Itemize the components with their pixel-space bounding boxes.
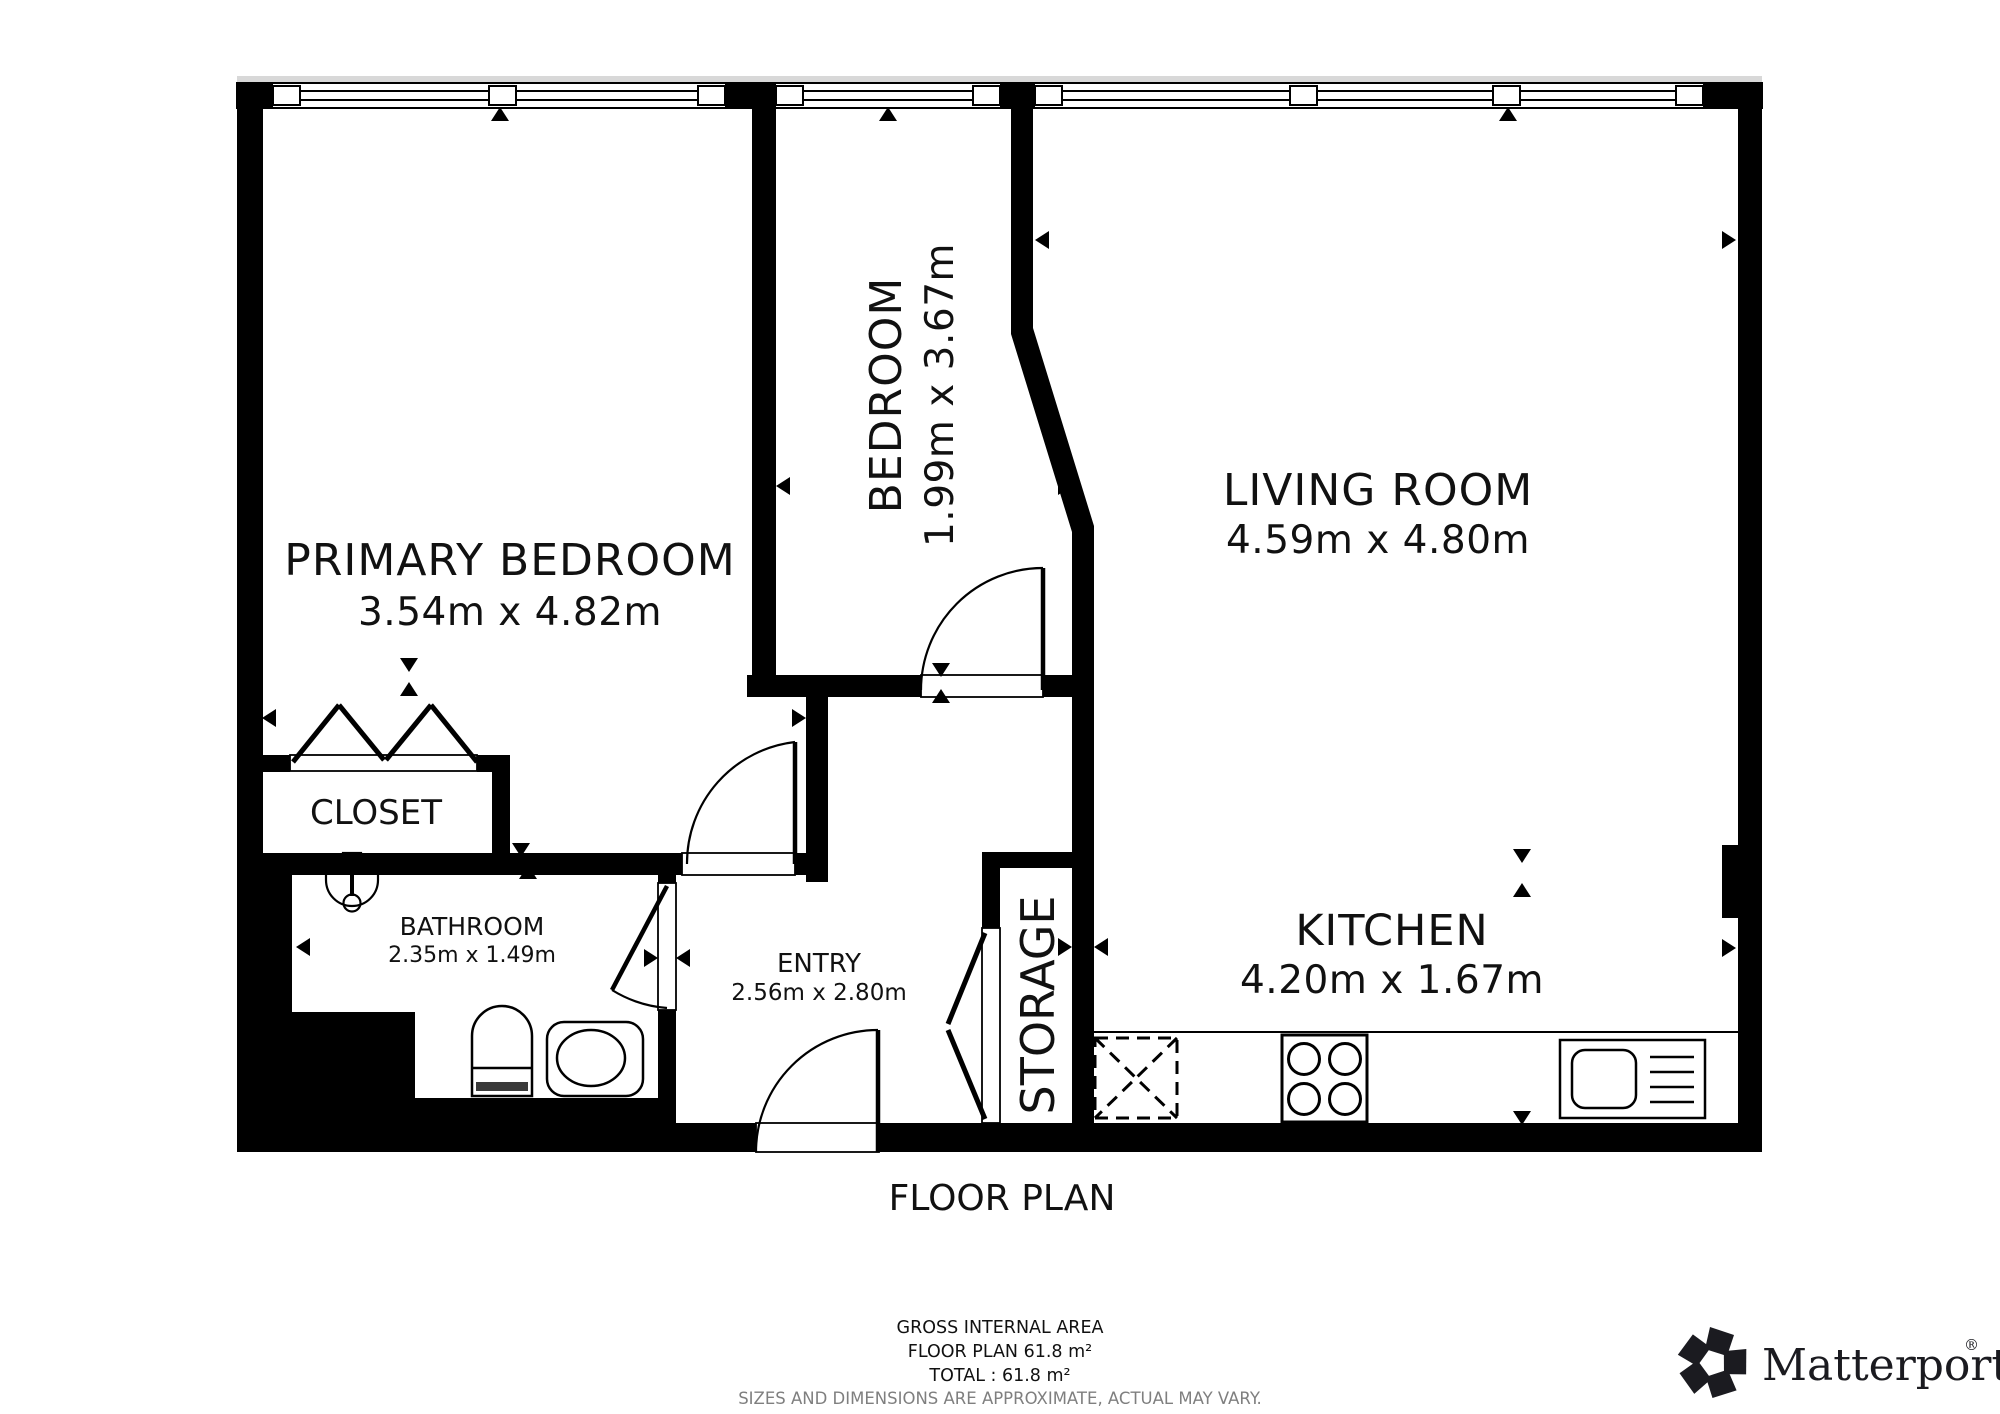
wall-right-notch	[1722, 845, 1738, 918]
arrow-up-icon	[1499, 107, 1517, 121]
footer-total-area: TOTAL : 61.8 m²	[928, 1366, 1070, 1386]
wall-closet-stub	[263, 755, 290, 772]
label-bedroom-dims: 1.99m x 3.67m	[918, 243, 963, 547]
arrow-down-icon	[400, 658, 418, 672]
matterport-mark-icon	[1675, 1327, 1754, 1404]
wall-entry-divider	[806, 675, 828, 882]
primary-bedroom-door-sill	[682, 853, 795, 875]
primary-bedroom-door	[687, 742, 795, 864]
floor-plan-page: PRIMARY BEDROOM 3.54m x 4.82m BEDROOM 1.…	[0, 0, 2000, 1414]
label-bathroom-dims: 2.35m x 1.49m	[388, 943, 556, 968]
label-kitchen-name: KITCHEN	[1295, 906, 1488, 956]
stove-icon	[1282, 1035, 1367, 1122]
matterport-logo: Matterport ®	[1675, 1327, 2000, 1404]
label-primary-bedroom-name: PRIMARY BEDROOM	[284, 535, 735, 586]
wall-bottom-left-raise	[237, 1098, 676, 1123]
arrow-right-icon	[792, 709, 806, 727]
storage-door-sill	[982, 928, 1000, 1123]
wall-shadow	[237, 76, 1762, 83]
wall-closet-stub	[477, 755, 492, 772]
arrow-up-icon	[400, 682, 418, 696]
wall-right	[1738, 83, 1762, 1152]
wall-window-separator	[1000, 83, 1035, 108]
closet-bifold-door	[293, 705, 477, 762]
arrow-left-icon	[1035, 231, 1049, 249]
label-storage-name: STORAGE	[1011, 896, 1065, 1115]
label-bathroom-name: BATHROOM	[400, 912, 545, 941]
page-title: FLOOR PLAN	[889, 1178, 1116, 1219]
wall-primary-bedroom-bedroom	[752, 108, 776, 675]
wall-bathroom-right	[658, 1010, 676, 1123]
arrow-up-icon	[491, 107, 509, 121]
arrow-right-icon	[644, 949, 658, 967]
toilet-icon	[472, 1006, 532, 1096]
storage-bifold-door	[948, 933, 985, 1119]
wall-bathroom-left-thick	[263, 870, 292, 1098]
footer-gross-internal-area: GROSS INTERNAL AREA	[897, 1318, 1104, 1338]
wall-closet-right	[492, 755, 510, 853]
wall-bedroom-bottom	[747, 675, 921, 697]
label-storage: STORAGE	[1011, 896, 1065, 1115]
arrow-left-icon	[262, 709, 276, 727]
wall-storage-right	[1072, 697, 1094, 1123]
top-window-band	[237, 76, 1762, 108]
label-closet-name: CLOSET	[310, 793, 442, 833]
arrow-right-icon	[1722, 939, 1736, 957]
kitchen-fixtures	[1094, 1032, 1738, 1122]
footer-floor-plan-area: FLOOR PLAN 61.8 m²	[908, 1342, 1092, 1362]
label-entry-dims: 2.56m x 2.80m	[731, 980, 906, 1006]
arrow-left-icon	[776, 477, 790, 495]
label-living-room-dims: 4.59m x 4.80m	[1226, 518, 1530, 563]
label-bedroom: BEDROOM 1.99m x 3.67m	[861, 243, 963, 547]
wall-bottom	[879, 1123, 1762, 1152]
wall-bottom	[237, 1123, 756, 1152]
footer: GROSS INTERNAL AREA FLOOR PLAN 61.8 m² T…	[738, 1318, 1262, 1408]
label-living-room-name: LIVING ROOM	[1223, 465, 1533, 516]
arrow-left-icon	[1094, 938, 1108, 956]
label-kitchen-dims: 4.20m x 1.67m	[1240, 958, 1544, 1003]
arrow-left-icon	[676, 949, 690, 967]
registered-trademark-icon: ®	[1964, 1336, 1979, 1354]
wall-bathroom-right	[658, 870, 676, 883]
arrow-up-icon	[879, 107, 897, 121]
wall-hallway	[237, 853, 682, 875]
appliance-space-icon	[1095, 1038, 1177, 1118]
entry-door-sill	[756, 1123, 879, 1152]
wall-storage-top	[982, 852, 1089, 868]
wall-bathroom-block	[292, 1012, 415, 1098]
wall-left	[237, 83, 263, 1152]
kitchen-sink-icon	[1560, 1040, 1705, 1118]
label-entry-name: ENTRY	[777, 949, 861, 979]
label-bedroom-name: BEDROOM	[861, 277, 912, 514]
arrow-down-icon	[1513, 1111, 1531, 1125]
wall-bedroom-right-slanted	[1011, 108, 1094, 697]
arrow-left-icon	[296, 938, 310, 956]
footer-disclaimer: SIZES AND DIMENSIONS ARE APPROXIMATE, AC…	[738, 1389, 1262, 1408]
bidet-icon	[547, 1022, 643, 1096]
floor-plan-canvas: PRIMARY BEDROOM 3.54m x 4.82m BEDROOM 1.…	[0, 0, 2000, 1414]
label-primary-bedroom-dims: 3.54m x 4.82m	[358, 590, 662, 635]
arrow-down-icon	[1513, 849, 1531, 863]
wall-window-separator	[725, 83, 776, 108]
arrow-up-icon	[1513, 883, 1531, 897]
arrow-right-icon	[1722, 231, 1736, 249]
